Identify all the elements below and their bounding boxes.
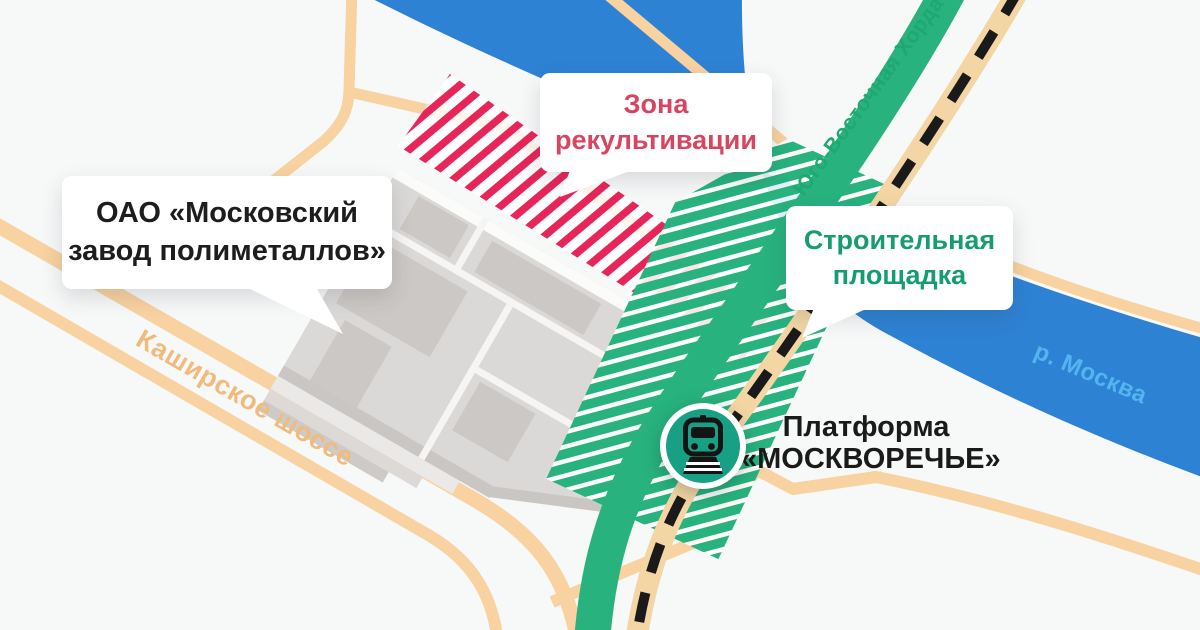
- factory-callout-line1: ОАО «Московский: [96, 195, 358, 233]
- factory-callout: ОАО «Московский завод полиметаллов»: [62, 176, 392, 289]
- construction-callout-line2: площадка: [833, 258, 966, 293]
- factory-callout-line2: завод полиметаллов»: [68, 233, 386, 271]
- map-infographic: Каширское шоссе Юго-Восточная Хорда р. М…: [0, 0, 1200, 630]
- platform-label-line2: «МОСКВОРЕЧЬЕ»: [741, 444, 991, 476]
- recultivation-callout-line2: рекультивации: [555, 123, 757, 158]
- train-icon: [659, 402, 747, 490]
- construction-callout: Строительная площадка: [786, 206, 1013, 310]
- platform-label-line1: Платформа: [741, 412, 991, 444]
- recultivation-callout-line1: Зона: [624, 87, 689, 122]
- construction-callout-line1: Строительная: [804, 223, 995, 258]
- train-icon-svg: [659, 402, 747, 490]
- platform-label: Платформа «МОСКВОРЕЧЬЕ»: [741, 412, 991, 476]
- recultivation-callout: Зона рекультивации: [540, 73, 772, 172]
